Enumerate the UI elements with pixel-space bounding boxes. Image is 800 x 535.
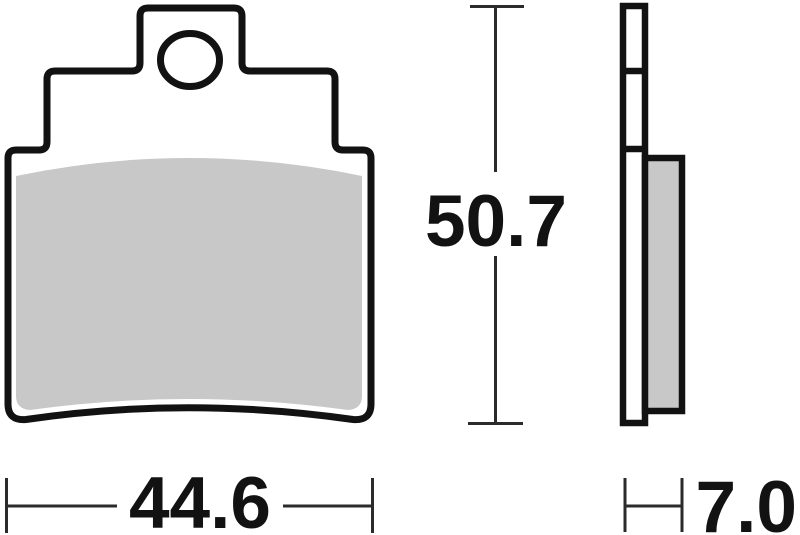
mounting-hole <box>161 34 220 87</box>
technical-drawing-page: 50.7 44.6 7.0 <box>0 0 800 535</box>
friction-material-side <box>645 158 682 411</box>
width-dimension-label: 44.6 <box>129 463 271 535</box>
front-view <box>8 8 371 420</box>
height-dimension-label: 50.7 <box>425 181 567 262</box>
width-dimension: 44.6 <box>7 463 373 535</box>
thickness-dimension-label: 7.0 <box>696 467 797 535</box>
brake-pad-dimension-drawing: 50.7 44.6 7.0 <box>0 0 800 535</box>
side-view <box>621 6 682 423</box>
thickness-dimension: 7.0 <box>625 467 797 535</box>
height-dimension: 50.7 <box>425 7 567 424</box>
friction-material-front <box>16 158 362 410</box>
